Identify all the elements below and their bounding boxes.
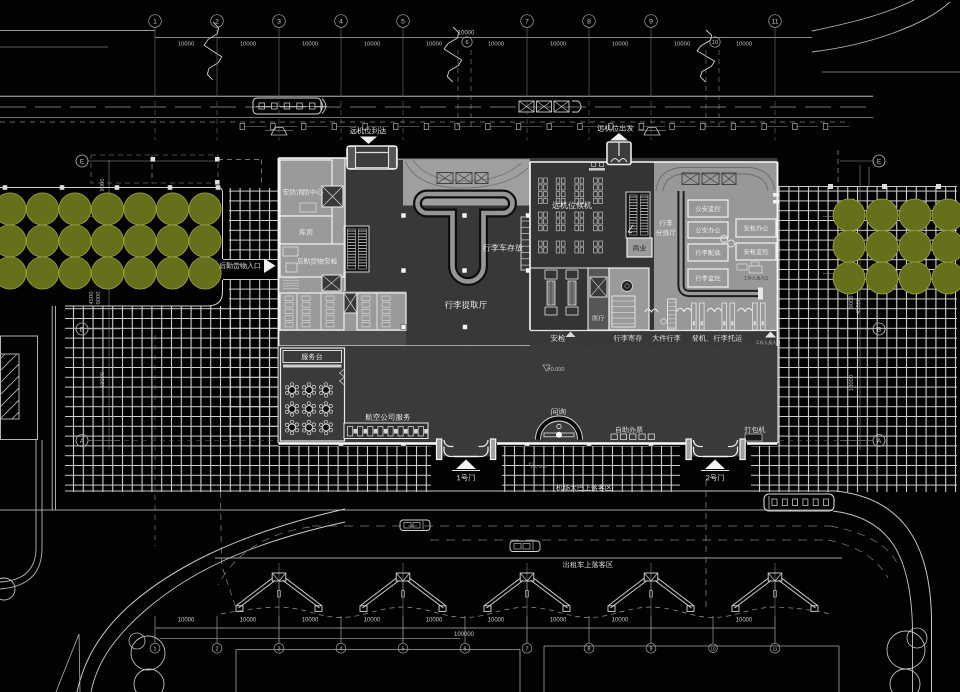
svg-text:2: 2 [215, 19, 219, 26]
svg-text:11: 11 [771, 19, 778, 26]
svg-text:10000: 10000 [488, 42, 504, 48]
svg-text:1: 1 [154, 646, 157, 652]
svg-text:10000: 10000 [550, 42, 566, 48]
svg-text:E: E [877, 158, 882, 165]
svg-text:E: E [80, 158, 85, 165]
svg-text:4: 4 [339, 19, 343, 26]
svg-text:10000: 10000 [178, 618, 195, 624]
svg-text:10000: 10000 [736, 42, 752, 48]
svg-text:B: B [80, 326, 84, 333]
svg-text:9000: 9000 [96, 292, 102, 305]
svg-text:6: 6 [465, 40, 468, 46]
svg-text:7: 7 [525, 19, 529, 26]
svg-text:A: A [877, 438, 882, 445]
svg-text:9000: 9000 [100, 179, 106, 192]
svg-text:A: A [80, 438, 85, 445]
svg-text:10: 10 [710, 646, 716, 651]
svg-text:8: 8 [588, 646, 591, 652]
svg-text:10000: 10000 [240, 42, 256, 48]
svg-text:±0.000: ±0.000 [548, 367, 565, 373]
svg-text:10000: 10000 [488, 618, 505, 624]
svg-text:10000: 10000 [302, 42, 318, 48]
svg-text:9: 9 [649, 19, 653, 26]
svg-text:10000: 10000 [674, 42, 690, 48]
svg-text:18000: 18000 [849, 375, 855, 391]
svg-text:10000: 10000 [178, 42, 194, 48]
svg-text:18000: 18000 [100, 372, 106, 388]
svg-text:11: 11 [773, 646, 778, 651]
svg-text:1: 1 [153, 19, 157, 26]
svg-text:8: 8 [587, 19, 591, 26]
svg-text:5: 5 [401, 19, 405, 26]
svg-text:10000: 10000 [426, 42, 442, 48]
svg-text:4500: 4500 [89, 292, 95, 305]
svg-text:10000: 10000 [302, 618, 319, 624]
svg-text:-0.300: -0.300 [534, 464, 547, 469]
svg-text:10000: 10000 [240, 618, 257, 624]
svg-text:100000: 100000 [454, 632, 475, 638]
svg-text:10000: 10000 [364, 618, 381, 624]
svg-text:45000: 45000 [856, 298, 862, 314]
svg-text:B: B [877, 326, 881, 333]
svg-text:10000: 10000 [736, 618, 753, 624]
svg-text:10000: 10000 [426, 618, 443, 624]
svg-text:10000: 10000 [550, 618, 567, 624]
svg-text:2: 2 [216, 646, 219, 652]
svg-text:10000: 10000 [364, 42, 380, 48]
svg-text:7: 7 [526, 646, 529, 652]
svg-text:10000: 10000 [612, 42, 628, 48]
svg-text:9: 9 [650, 646, 653, 652]
svg-text:9000: 9000 [849, 296, 855, 309]
svg-text:10000: 10000 [612, 618, 629, 624]
svg-text:3: 3 [277, 19, 281, 26]
svg-text:10: 10 [712, 40, 718, 46]
svg-text:10000: 10000 [458, 31, 475, 37]
